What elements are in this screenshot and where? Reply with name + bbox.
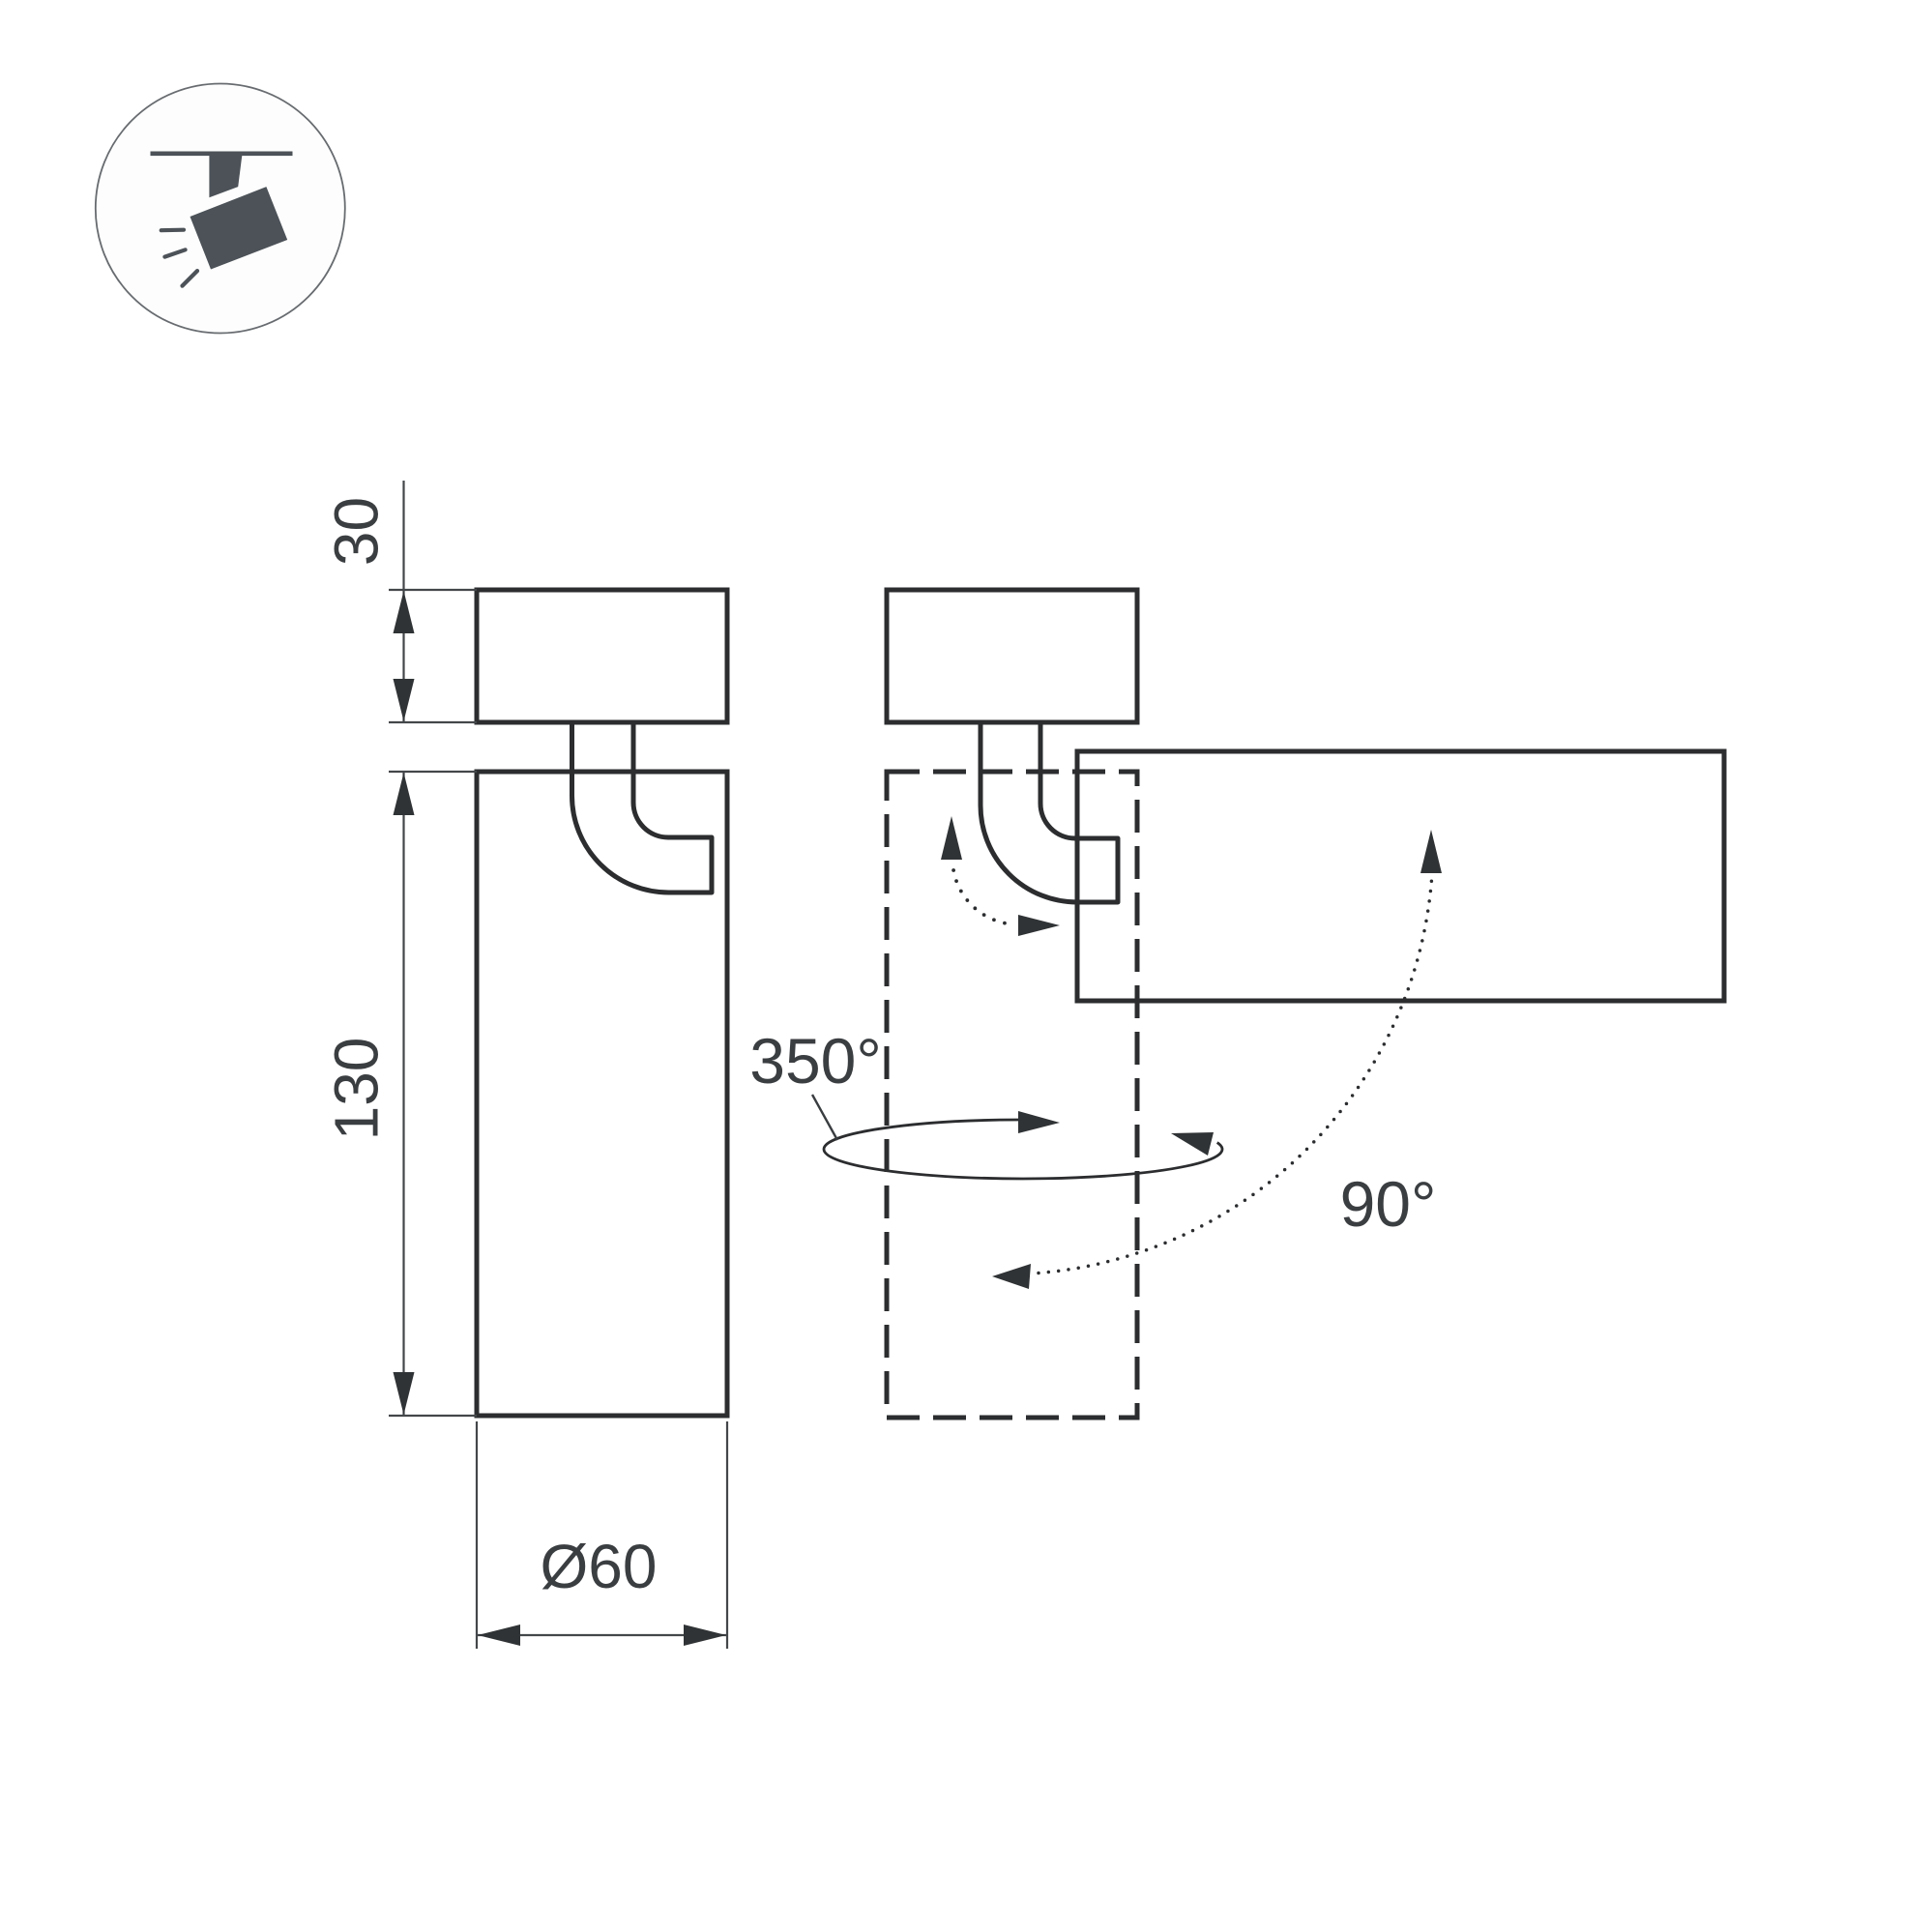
svg-text:130: 130	[322, 1038, 392, 1141]
svg-text:30: 30	[322, 497, 392, 566]
svg-text:90°: 90°	[1340, 1168, 1437, 1240]
svg-text:350°: 350°	[749, 1025, 882, 1097]
svg-text:Ø60: Ø60	[541, 1532, 658, 1601]
